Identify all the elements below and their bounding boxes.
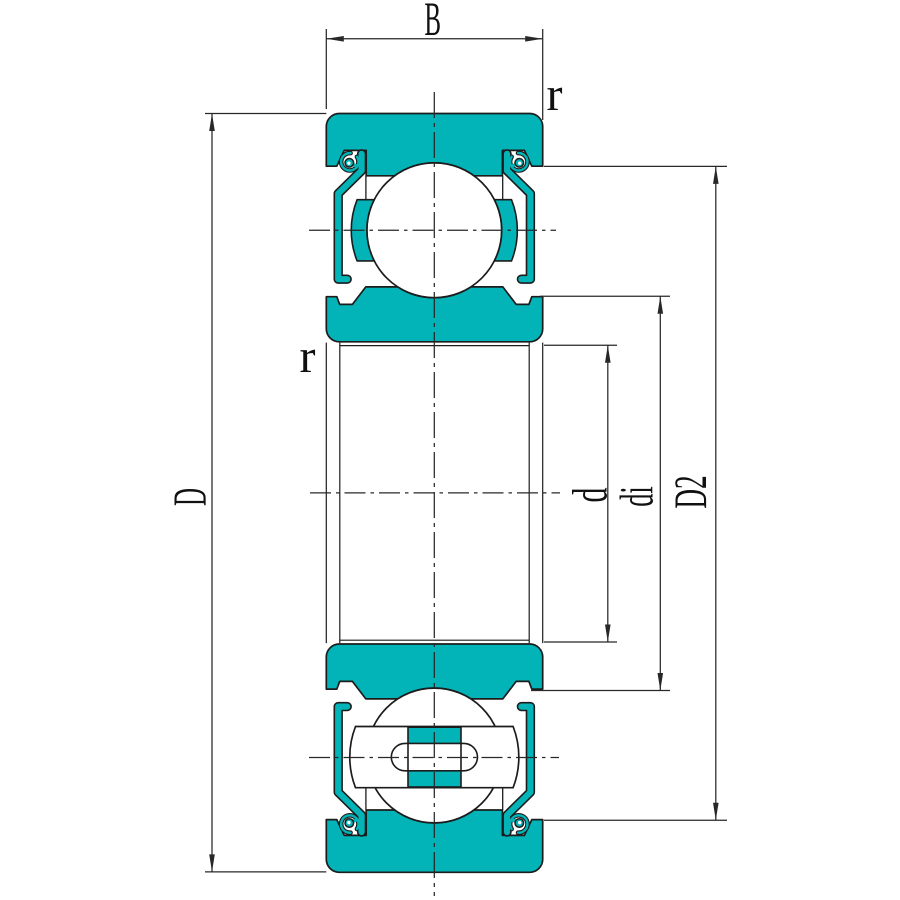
svg-text:d: d xyxy=(562,487,618,502)
svg-text:D: D xyxy=(165,488,218,506)
svg-text:D2: D2 xyxy=(666,475,717,508)
svg-text:di: di xyxy=(610,486,663,507)
svg-text:B: B xyxy=(424,0,441,46)
svg-text:r: r xyxy=(547,68,563,121)
svg-text:r: r xyxy=(300,330,316,383)
